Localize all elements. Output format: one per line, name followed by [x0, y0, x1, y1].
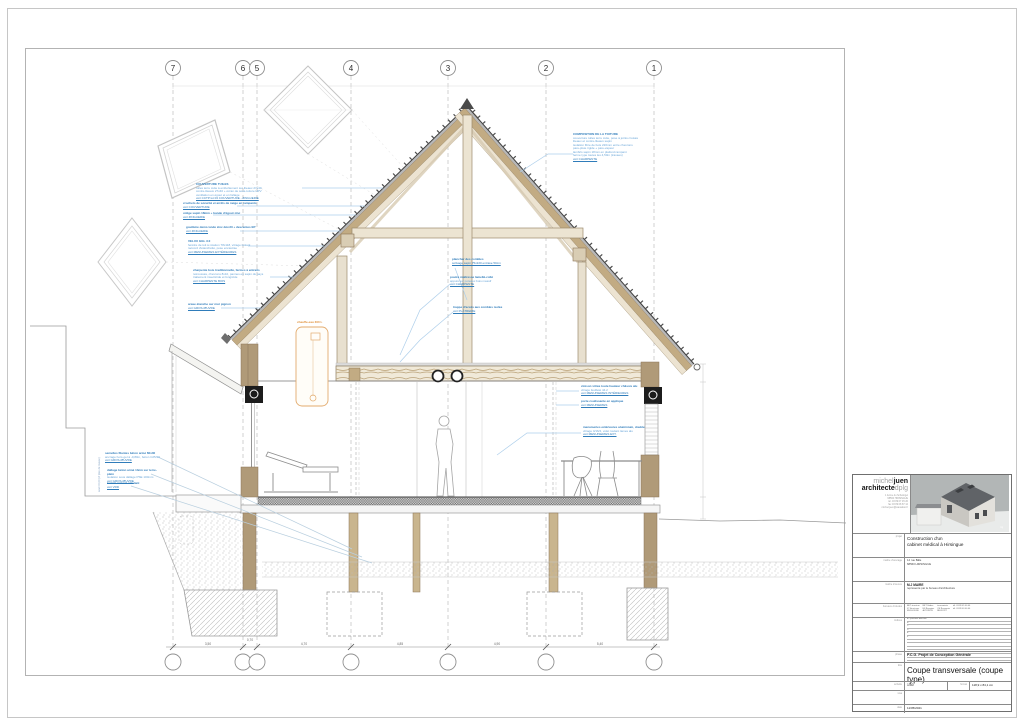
logo-thin: dplg — [895, 485, 908, 492]
grid-bubbles-bottom — [165, 654, 662, 670]
consultant-col: économisteCE ÉconomieBELFORT — [937, 605, 950, 616]
revisions-row: indices A - première diffusionBCDEF — [853, 617, 1011, 651]
scale-row: échelle 1/50 format 118,9 x 84,1 cm — [853, 681, 1011, 690]
terrain-right — [659, 519, 846, 523]
consultant-col: tél. 03 89 45 00 00tél. 03 89 40 00 00 — [953, 605, 970, 616]
consultants-row: bureaux d'études BET structureIC Structu… — [853, 603, 1011, 617]
architect-row: maître d'œuvre M.J MAIRE représenté par … — [853, 581, 1011, 603]
annotation-note: semelles filantes béton armé 60x30ancrag… — [105, 452, 163, 463]
annotation-note: volige sapin 18mm + bande d'égout zincvo… — [183, 212, 253, 219]
annotation-note: menuiseries extérieures aluminium, doubl… — [583, 426, 645, 437]
drawing-title-row: titre Coupe transversale (coupe type) — [853, 662, 1011, 681]
dim-label: 4,70 — [301, 642, 307, 646]
project-title: Construction d'uncabinet médical à Hirsi… — [905, 534, 1011, 557]
grid-bubble-label: 5 — [255, 64, 260, 73]
drawing-sheet: 7 6 5 4 3 2 1 3,50 0,70 4,70 4,85 — [0, 0, 1024, 724]
annotation-note: charpente bois traditionnelle, fermes à … — [193, 269, 291, 283]
title-block: micheljuen architectedplg 1 ferme du Sch… — [852, 474, 1012, 712]
grid-bubble-label: 4 — [349, 64, 354, 73]
water-heater — [296, 327, 328, 406]
dim-label: 3,50 — [205, 642, 211, 646]
footing-dashed — [527, 592, 582, 636]
row-label: phase — [853, 652, 905, 662]
annotation-note: COMPOSITION DE LA TOITUREcouverture tuil… — [573, 133, 655, 161]
annotation-note: crochets de sécurité et arrêts de neige … — [183, 202, 269, 209]
dim-label: 4,85 — [397, 642, 403, 646]
grid-bubble-label: 3 — [446, 64, 451, 73]
floor-beam — [349, 368, 360, 381]
drawing-title: Coupe transversale (coupe type) — [905, 663, 1011, 681]
chair-side — [597, 451, 618, 496]
annotation-note: cloison vitrée toute hauteur châssis alu… — [581, 385, 643, 396]
exam-table — [264, 452, 338, 492]
phase-value: P.C.G. Projet de Conception Générale — [905, 652, 1011, 662]
date-value: 11/05/2021 — [905, 705, 1011, 713]
project-row: projet Construction d'uncabinet médical … — [853, 533, 1011, 557]
client-address: 14 rue Bâle68560 HIRSINGUE — [905, 558, 1011, 581]
left-eave-fascia — [221, 333, 231, 344]
chair-shell — [572, 456, 592, 496]
person-silhouette — [436, 416, 454, 496]
earth-bank — [153, 512, 241, 590]
louvre-shutter-right — [645, 404, 658, 455]
architect-address: 1 ferme du Schwingel68560 HIRSINGUEtél. … — [853, 494, 908, 509]
annotation-note: arase étanche sur mur pignonvoir GROS-ŒU… — [188, 303, 246, 310]
consultant-col: BET fluidesES ÉnergiesALTKIRCH — [923, 605, 935, 616]
format-value: 118,9 x 84,1 cm — [969, 682, 1011, 690]
annotation-note: plancher des comblessolivage sapin 75x22… — [452, 258, 524, 265]
scale-value: 1/50 — [905, 682, 947, 690]
architect-logo: micheljuen architectedplg 1 ferme du Sch… — [853, 475, 911, 533]
water-heater-label: chauffe-eau 300 L — [297, 320, 341, 324]
architect-sub: représenté par le bureau d'architecture — [907, 587, 1009, 591]
duct-section — [452, 371, 463, 382]
row-label: maître d'œuvre — [853, 582, 905, 603]
logo-bold: juen — [894, 478, 908, 485]
project-photo: mj — [911, 475, 1011, 533]
logo-bold: architecte — [862, 485, 895, 492]
visa-row: visa — [853, 690, 1011, 704]
grid-bubble-label: 7 — [171, 64, 176, 73]
annotation-note: porte coulissante en appliquevoir MENUIS… — [581, 400, 637, 407]
client-row: maître d'ouvrage 14 rue Bâle68560 HIRSIN… — [853, 557, 1011, 581]
row-label: échelle — [853, 682, 905, 690]
grid-bubble-label: 2 — [544, 64, 549, 73]
footing-right — [627, 588, 668, 640]
purlin — [341, 234, 354, 247]
footing-dashed — [327, 592, 382, 636]
annotation-note: VELUX GGL 3.0fenêtre de toit à rotation … — [188, 240, 270, 254]
phase-row: phase P.C.G. Projet de Conception Généra… — [853, 651, 1011, 662]
annotation-note: gouttière demi-ronde zinc dév.33 + desce… — [186, 226, 262, 233]
annotation-note: trappe d'accès aux combles isoléevoir PL… — [453, 306, 529, 313]
subbase-band — [262, 562, 838, 577]
date-row: date 11/05/2021 — [853, 704, 1011, 713]
annotation-note: terrain naturel existantvoir VRD — [107, 482, 149, 489]
footing-left — [184, 590, 277, 636]
row-label: titre — [853, 663, 905, 681]
row-label: date — [853, 705, 905, 713]
king-post — [463, 115, 472, 368]
vertical-annotation: seuil ±0,00 (cf plan de masse) — [98, 457, 101, 492]
ridge-cap — [460, 98, 474, 109]
annotation-note: COUVERTURE TUILEStuiles terre cuite à em… — [196, 183, 302, 201]
grid-bubble-label: 1 — [652, 64, 657, 73]
annotation-note: poutre maîtresse lamellé-colléappuis sur… — [450, 276, 538, 287]
purlin — [573, 248, 586, 261]
dim-label: 0,70 — [247, 638, 253, 642]
duct-section — [433, 371, 444, 382]
roller-shutter-box-right — [644, 387, 662, 404]
row-label: projet — [853, 534, 905, 557]
row-label: maître d'ouvrage — [853, 558, 905, 581]
format-label: format — [947, 682, 969, 690]
gutter — [694, 364, 700, 370]
consultant-col: BET structureIC StructuresMULHOUSE — [907, 605, 920, 616]
title-block-header: micheljuen architectedplg 1 ferme du Sch… — [853, 475, 1011, 533]
logo-thin: michel — [873, 478, 893, 485]
dim-label: 5,40 — [597, 642, 603, 646]
roller-shutter-box-left — [245, 386, 263, 403]
top-dimension-line — [173, 83, 654, 89]
attic-post — [578, 262, 586, 366]
row-label: bureaux d'études — [853, 604, 905, 617]
dim-label: 4,90 — [494, 642, 500, 646]
svg-text:mj: mj — [1000, 525, 1003, 529]
row-label: visa — [853, 691, 905, 704]
partitions — [356, 382, 556, 497]
bottom-dimension-line: 3,50 0,70 4,70 4,85 4,90 5,40 — [165, 638, 662, 670]
revision-table: A - première diffusionBCDEF — [905, 618, 1011, 651]
grid-bubbles-top: 7 6 5 4 3 2 1 — [166, 61, 662, 76]
slab — [240, 505, 660, 513]
grid-bubble-label: 6 — [241, 64, 246, 73]
attic-knee-wall — [337, 256, 347, 366]
floor-insulation — [258, 498, 641, 506]
row-label: indices — [853, 618, 905, 651]
